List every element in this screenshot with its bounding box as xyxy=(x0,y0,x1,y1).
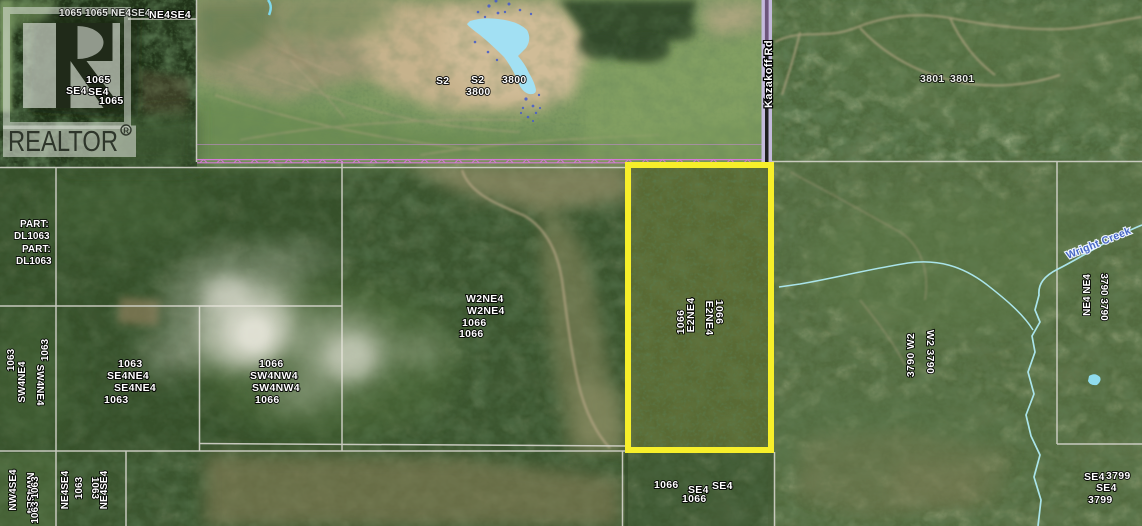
svg-text:SE4: SE4 xyxy=(712,480,733,492)
svg-text:W2NE4: W2NE4 xyxy=(466,293,504,305)
svg-text:REALTOR: REALTOR xyxy=(8,126,118,158)
svg-text:NE4SE4: NE4SE4 xyxy=(149,9,191,21)
svg-text:1066: 1066 xyxy=(675,310,687,335)
svg-text:W2 3790: W2 3790 xyxy=(924,330,936,374)
svg-text:3801: 3801 xyxy=(920,73,945,85)
svg-text:3800: 3800 xyxy=(502,74,527,86)
svg-text:SE4NE4: SE4NE4 xyxy=(114,382,156,394)
svg-text:1065: 1065 xyxy=(86,74,111,86)
svg-text:NW4SE4: NW4SE4 xyxy=(8,469,19,511)
svg-text:1066: 1066 xyxy=(259,358,284,370)
svg-text:3799: 3799 xyxy=(1106,470,1131,482)
svg-text:1063: 1063 xyxy=(40,338,51,361)
svg-text:W2NE4: W2NE4 xyxy=(467,305,505,317)
svg-text:SW4NE4: SW4NE4 xyxy=(34,364,45,406)
svg-text:SW4NE4: SW4NE4 xyxy=(17,361,28,403)
svg-text:1063 1063: 1063 1063 xyxy=(30,476,41,524)
svg-text:SE4: SE4 xyxy=(66,85,87,97)
svg-text:3800: 3800 xyxy=(466,86,491,98)
svg-text:1066: 1066 xyxy=(713,300,725,325)
svg-text:NE4SE4: NE4SE4 xyxy=(60,470,71,509)
svg-text:DL1063: DL1063 xyxy=(14,231,50,242)
svg-text:SE4: SE4 xyxy=(1096,482,1117,494)
svg-text:1063: 1063 xyxy=(6,348,17,371)
svg-text:SW4NW4: SW4NW4 xyxy=(252,382,300,394)
svg-text:NE4 NE4: NE4 NE4 xyxy=(1082,274,1093,316)
svg-text:3801: 3801 xyxy=(950,73,975,85)
svg-text:3799: 3799 xyxy=(1088,494,1113,506)
svg-text:SW4NW4: SW4NW4 xyxy=(250,370,298,382)
svg-text:1066: 1066 xyxy=(682,493,707,505)
svg-text:S2: S2 xyxy=(471,74,484,86)
svg-text:3790 W2: 3790 W2 xyxy=(905,333,917,377)
svg-text:1066: 1066 xyxy=(459,328,484,340)
svg-text:PART:: PART: xyxy=(22,244,51,255)
svg-text:PART:: PART: xyxy=(20,219,49,230)
svg-text:1063: 1063 xyxy=(118,358,143,370)
svg-text:1065 1065 NE4SE4: 1065 1065 NE4SE4 xyxy=(59,8,151,19)
svg-text:DL1063: DL1063 xyxy=(16,256,52,267)
svg-text:1063: 1063 xyxy=(74,476,85,499)
svg-text:1065: 1065 xyxy=(99,95,124,107)
svg-text:SE4NE4: SE4NE4 xyxy=(107,370,149,382)
svg-text:S2: S2 xyxy=(436,75,449,87)
svg-text:1063: 1063 xyxy=(104,394,129,406)
svg-text:R: R xyxy=(123,126,129,135)
svg-text:1066: 1066 xyxy=(654,479,679,491)
svg-text:1066: 1066 xyxy=(255,394,280,406)
svg-text:3790 3790: 3790 3790 xyxy=(1098,273,1109,321)
svg-text:NE4SE4: NE4SE4 xyxy=(99,470,110,509)
svg-text:Kazakoff Rd: Kazakoff Rd xyxy=(763,40,775,108)
